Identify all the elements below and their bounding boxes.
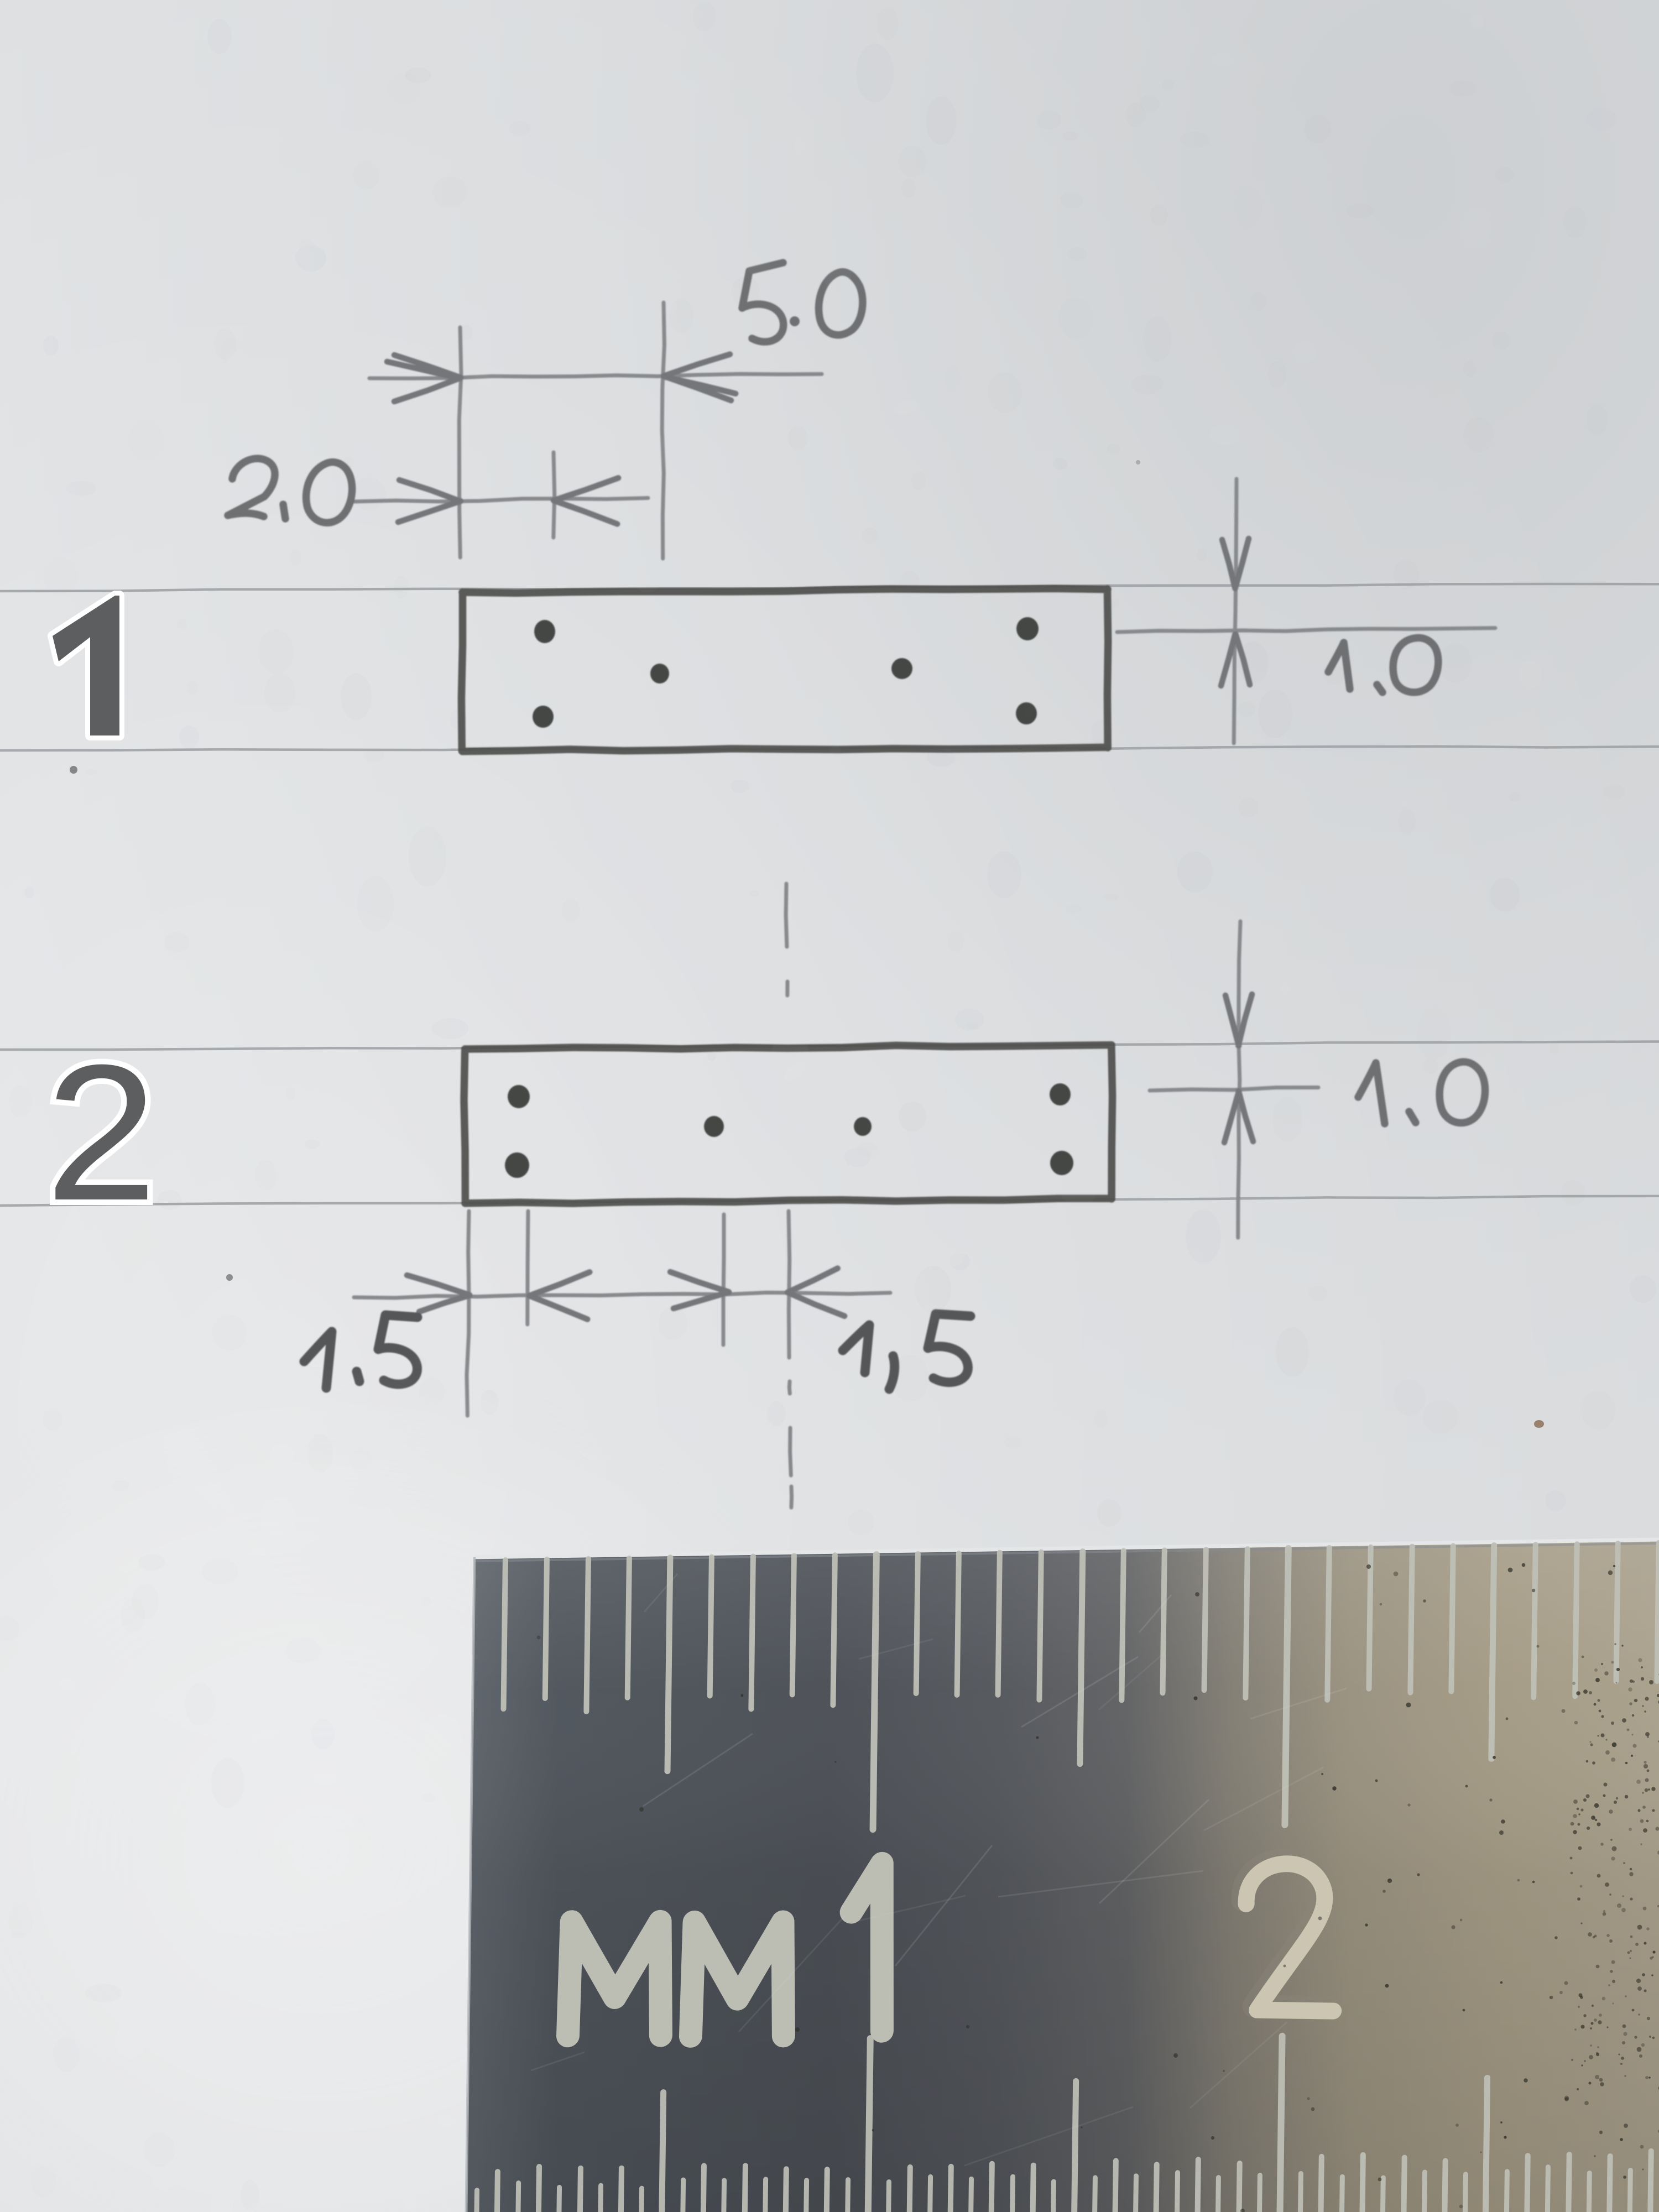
- svg-text:2: 2: [45, 1024, 157, 1240]
